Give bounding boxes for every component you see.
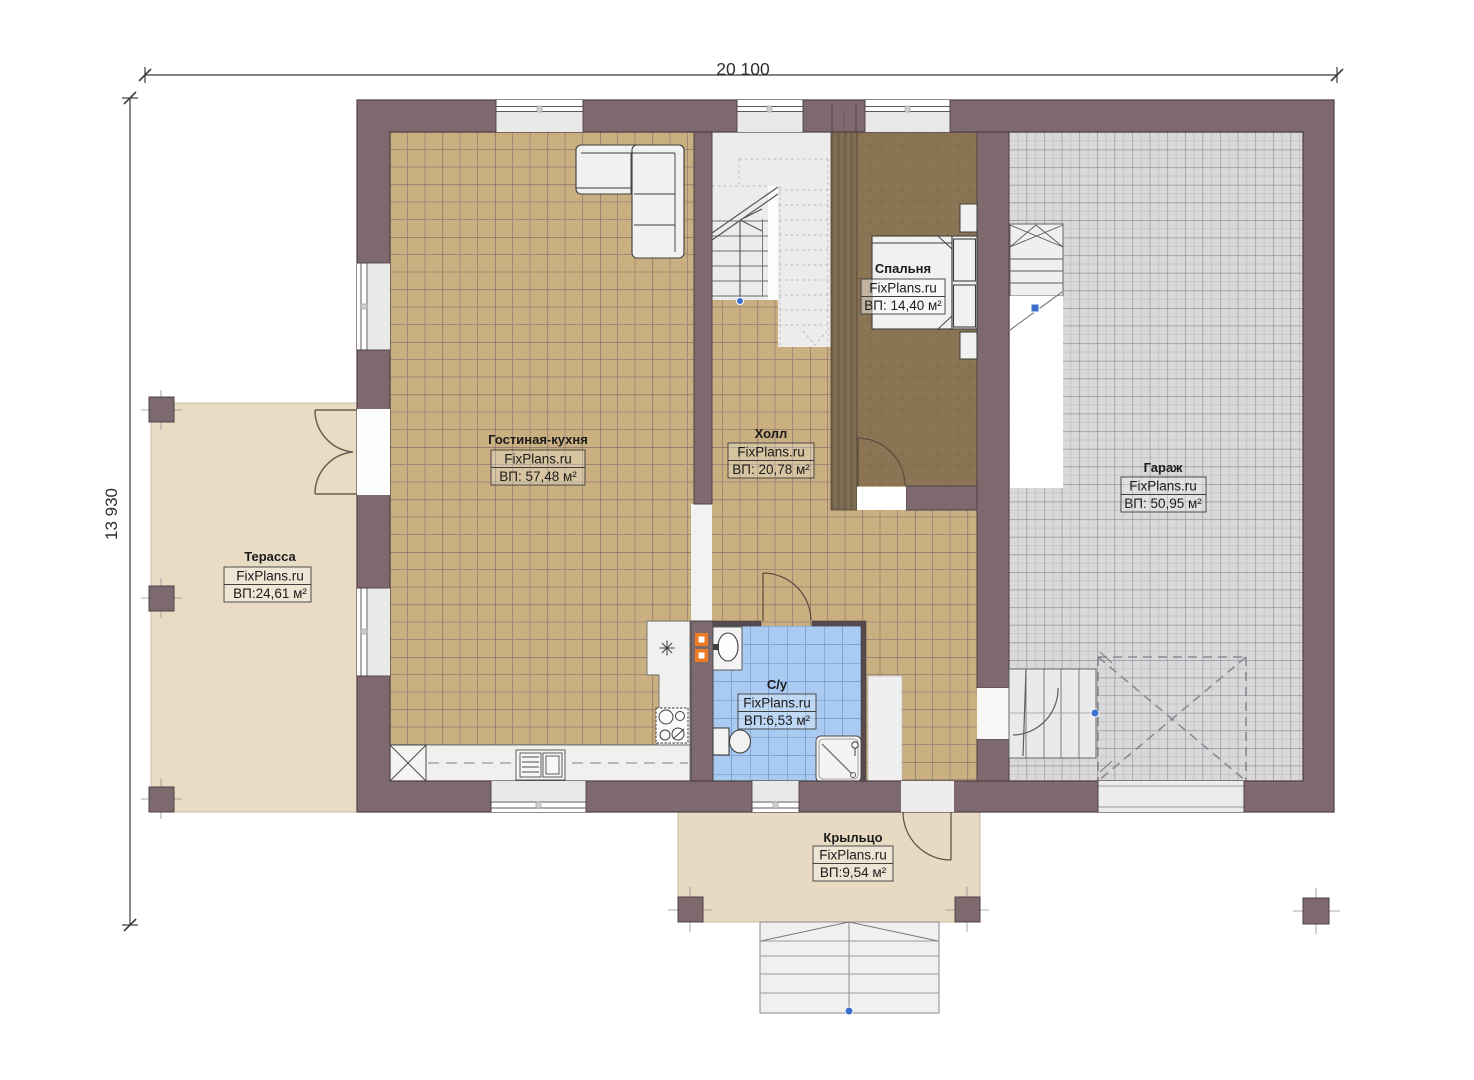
svg-text:FixPlans.ru: FixPlans.ru <box>869 281 937 296</box>
svg-text:Терасса: Терасса <box>244 549 296 564</box>
svg-text:FixPlans.ru: FixPlans.ru <box>504 452 572 467</box>
svg-text:FixPlans.ru: FixPlans.ru <box>236 569 304 584</box>
svg-text:FixPlans.ru: FixPlans.ru <box>1129 479 1197 494</box>
svg-text:С/у: С/у <box>767 677 788 692</box>
svg-text:ВП: 20,78 м²: ВП: 20,78 м² <box>732 462 810 477</box>
svg-text:ВП: 57,48 м²: ВП: 57,48 м² <box>499 469 577 484</box>
svg-text:13 930: 13 930 <box>102 488 121 540</box>
svg-text:ВП: 50,95 м²: ВП: 50,95 м² <box>1124 496 1202 511</box>
svg-text:Холл: Холл <box>755 426 788 441</box>
svg-text:Крыльцо: Крыльцо <box>823 830 882 845</box>
svg-text:ВП:6,53 м²: ВП:6,53 м² <box>744 713 811 728</box>
svg-text:FixPlans.ru: FixPlans.ru <box>743 696 811 711</box>
svg-text:20 100: 20 100 <box>716 59 770 79</box>
svg-text:Гараж: Гараж <box>1144 460 1184 475</box>
svg-text:FixPlans.ru: FixPlans.ru <box>819 848 887 863</box>
svg-text:ВП:24,61 м²: ВП:24,61 м² <box>233 586 307 601</box>
svg-text:Гостиная-кухня: Гостиная-кухня <box>488 432 588 447</box>
svg-text:Спальня: Спальня <box>875 261 931 276</box>
svg-text:FixPlans.ru: FixPlans.ru <box>737 445 805 460</box>
svg-text:ВП: 14,40 м²: ВП: 14,40 м² <box>864 298 942 313</box>
svg-text:ВП:9,54 м²: ВП:9,54 м² <box>820 865 887 880</box>
